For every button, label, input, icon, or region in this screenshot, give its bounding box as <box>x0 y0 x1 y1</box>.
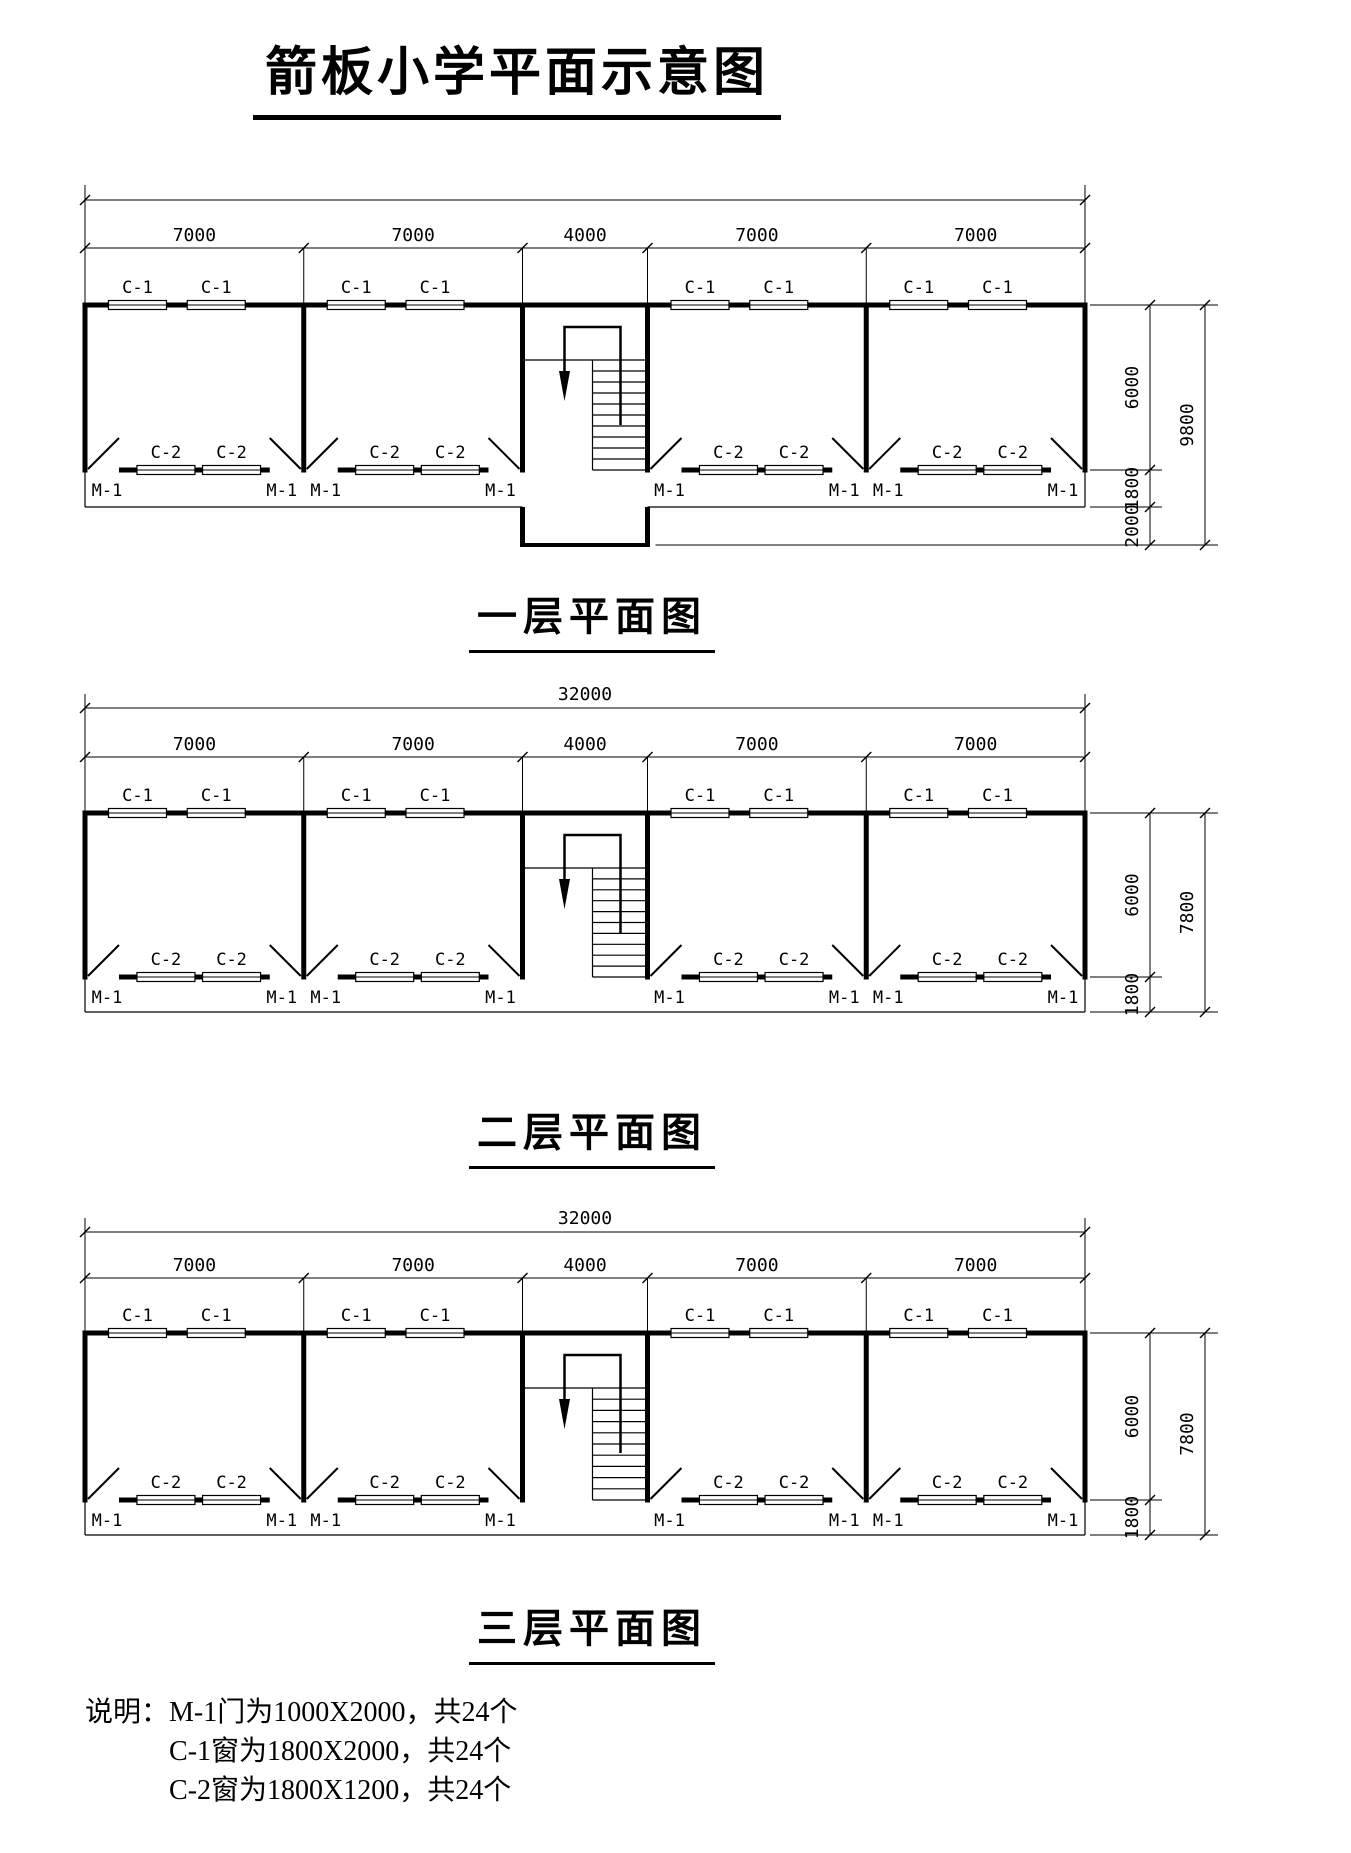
window-c2-label: C-2 <box>369 443 400 463</box>
door-m1-label: M-1 <box>92 481 123 501</box>
right-total-dim-label: 7800 <box>1177 1412 1198 1455</box>
window-c2-label: C-2 <box>713 1473 744 1493</box>
window-c1-label: C-1 <box>685 278 716 298</box>
staircase <box>523 327 648 470</box>
door-swing <box>307 438 338 469</box>
right-total-dim-label: 9800 <box>1177 403 1198 446</box>
right-dim-label: 1800 <box>1122 467 1143 510</box>
door-m1-label: M-1 <box>1048 988 1079 1008</box>
window-c2-label: C-2 <box>435 1473 466 1493</box>
door-swing <box>1051 945 1082 976</box>
right-dim-label: 6000 <box>1122 366 1143 409</box>
door-m1-label: M-1 <box>92 1511 123 1531</box>
right-dim-label: 6000 <box>1122 1395 1143 1438</box>
right-dimensions: 600018007800 <box>1090 808 1218 1017</box>
window-c1-label: C-1 <box>122 278 153 298</box>
window-c2-label: C-2 <box>216 1473 247 1493</box>
window-c2-label: C-2 <box>997 950 1028 970</box>
bay-dim-label: 7000 <box>173 1255 216 1276</box>
notes-lines: M-1门为1000X2000，共24个 C-1窗为1800X2000，共24个 … <box>169 1693 517 1810</box>
door-swing <box>832 438 863 469</box>
window-c1-label: C-1 <box>122 1306 153 1326</box>
right-total-dim-label: 7800 <box>1177 891 1198 934</box>
door-m1-label: M-1 <box>654 988 685 1008</box>
door-m1-label: M-1 <box>485 1511 516 1531</box>
bay-dim-label: 4000 <box>563 734 606 755</box>
windows: C-1C-1C-2C-2C-1C-1C-2C-2C-1C-1C-2C-2C-1C… <box>109 1306 1042 1505</box>
window-c1-label: C-1 <box>763 786 794 806</box>
door-swing <box>651 438 682 469</box>
bay-dim-label: 7000 <box>173 734 216 755</box>
door-swing <box>489 945 520 976</box>
window-c1-label: C-1 <box>903 278 934 298</box>
right-dim-label: 1800 <box>1122 1496 1143 1539</box>
note-door-spec: M-1门为1000X2000，共24个 <box>169 1693 517 1732</box>
window-c1-label: C-1 <box>201 1306 232 1326</box>
stair-down-arrow-icon <box>559 879 570 909</box>
door-swing <box>869 945 900 976</box>
window-c1-label: C-1 <box>903 786 934 806</box>
entrance-porch <box>520 507 650 545</box>
window-c2-label: C-2 <box>216 950 247 970</box>
window-c2-label: C-2 <box>713 443 744 463</box>
door-m1-label: M-1 <box>92 988 123 1008</box>
door-m1-label: M-1 <box>1048 481 1079 501</box>
window-c2-label: C-2 <box>779 950 810 970</box>
bay-dim-label: 7000 <box>735 734 778 755</box>
window-c2-label: C-2 <box>932 950 963 970</box>
door-m1-label: M-1 <box>485 988 516 1008</box>
note-window-c1-spec: C-1窗为1800X2000，共24个 <box>169 1732 517 1771</box>
window-c2-label: C-2 <box>216 443 247 463</box>
door-m1-label: M-1 <box>829 1511 860 1531</box>
window-c2-label: C-2 <box>997 1473 1028 1493</box>
door-m1-label: M-1 <box>873 481 904 501</box>
window-c2-label: C-2 <box>932 443 963 463</box>
window-c2-label: C-2 <box>435 950 466 970</box>
door-m1-label: M-1 <box>310 988 341 1008</box>
door-m1-label: M-1 <box>485 481 516 501</box>
bay-dim-label: 7000 <box>735 225 778 246</box>
right-dimensions: 6000180020009800 <box>656 300 1219 550</box>
door-m1-label: M-1 <box>310 1511 341 1531</box>
door-swing <box>307 945 338 976</box>
bay-dim-label: 7000 <box>954 1255 997 1276</box>
bay-dim-label: 4000 <box>563 1255 606 1276</box>
bay-dim-label: 4000 <box>563 225 606 246</box>
corridor <box>85 470 1085 507</box>
window-c1-label: C-1 <box>201 786 232 806</box>
door-swing <box>88 1468 119 1499</box>
right-dim-label: 1800 <box>1122 973 1143 1016</box>
legend-notes: 说明： M-1门为1000X2000，共24个 C-1窗为1800X2000，共… <box>85 1693 517 1810</box>
window-c1-label: C-1 <box>982 278 1013 298</box>
floor-plan-1: 70007000400070007000C-1C-1C-2C-2C-1C-1C-… <box>80 185 1218 550</box>
window-c2-label: C-2 <box>151 950 182 970</box>
window-c2-label: C-2 <box>369 950 400 970</box>
corridor <box>85 977 1085 1012</box>
staircase <box>523 835 648 977</box>
door-swing <box>1051 438 1082 469</box>
drawing-sheet: 70007000400070007000C-1C-1C-2C-2C-1C-1C-… <box>0 0 1351 1853</box>
bay-dim-label: 7000 <box>391 1255 434 1276</box>
window-c1-label: C-1 <box>763 1306 794 1326</box>
floor3-title: 三层平面图 <box>469 1596 715 1665</box>
door-swing <box>832 945 863 976</box>
stair-down-arrow-icon <box>559 1399 570 1429</box>
overall-dim-label: 32000 <box>558 684 612 705</box>
door-swing <box>88 438 119 469</box>
window-c1-label: C-1 <box>420 786 451 806</box>
floor-plans-drawing: 70007000400070007000C-1C-1C-2C-2C-1C-1C-… <box>0 0 1351 1853</box>
door-m1-label: M-1 <box>1048 1511 1079 1531</box>
door-swing <box>88 945 119 976</box>
door-m1-label: M-1 <box>829 988 860 1008</box>
door-swing <box>832 1468 863 1499</box>
window-c1-label: C-1 <box>763 278 794 298</box>
window-c1-label: C-1 <box>420 278 451 298</box>
window-c2-label: C-2 <box>997 443 1028 463</box>
corridor <box>85 1500 1085 1535</box>
door-m1-label: M-1 <box>310 481 341 501</box>
window-c1-label: C-1 <box>122 786 153 806</box>
bay-dim-label: 7000 <box>173 225 216 246</box>
window-c2-label: C-2 <box>369 1473 400 1493</box>
note-window-c2-spec: C-2窗为1800X1200，共24个 <box>169 1771 517 1810</box>
window-c2-label: C-2 <box>151 1473 182 1493</box>
window-c1-label: C-1 <box>982 786 1013 806</box>
bay-dim-label: 7000 <box>954 734 997 755</box>
door-swing <box>270 438 301 469</box>
staircase <box>523 1355 648 1500</box>
door-m1-label: M-1 <box>873 1511 904 1531</box>
window-c1-label: C-1 <box>341 1306 372 1326</box>
door-swing <box>270 945 301 976</box>
window-c2-label: C-2 <box>151 443 182 463</box>
bay-dim-label: 7000 <box>391 225 434 246</box>
window-c1-label: C-1 <box>420 1306 451 1326</box>
door-m1-label: M-1 <box>829 481 860 501</box>
bay-dim-label: 7000 <box>391 734 434 755</box>
door-m1-label: M-1 <box>266 1511 297 1531</box>
window-c1-label: C-1 <box>201 278 232 298</box>
door-m1-label: M-1 <box>873 988 904 1008</box>
window-c2-label: C-2 <box>435 443 466 463</box>
floor2-title: 二层平面图 <box>469 1100 715 1169</box>
floor1-title: 一层平面图 <box>469 584 715 653</box>
door-swing <box>869 438 900 469</box>
window-c2-label: C-2 <box>779 1473 810 1493</box>
right-dim-label: 6000 <box>1122 873 1143 916</box>
window-c1-label: C-1 <box>341 278 372 298</box>
window-c2-label: C-2 <box>779 443 810 463</box>
right-dim-label: 2000 <box>1122 504 1143 547</box>
window-c1-label: C-1 <box>903 1306 934 1326</box>
door-m1-label: M-1 <box>266 481 297 501</box>
window-c2-label: C-2 <box>713 950 744 970</box>
door-swing <box>869 1468 900 1499</box>
door-swing <box>307 1468 338 1499</box>
notes-prefix: 说明： <box>85 1693 169 1810</box>
door-swing <box>1051 1468 1082 1499</box>
window-c1-label: C-1 <box>685 1306 716 1326</box>
door-swing <box>489 438 520 469</box>
window-c1-label: C-1 <box>982 1306 1013 1326</box>
floor-plan-2: 3200070007000400070007000C-1C-1C-2C-2C-1… <box>80 684 1218 1017</box>
door-swing <box>270 1468 301 1499</box>
right-dimensions: 600018007800 <box>1090 1328 1218 1540</box>
door-m1-label: M-1 <box>266 988 297 1008</box>
window-c2-label: C-2 <box>932 1473 963 1493</box>
door-m1-label: M-1 <box>654 1511 685 1531</box>
door-swing <box>489 1468 520 1499</box>
bay-dim-label: 7000 <box>954 225 997 246</box>
window-c1-label: C-1 <box>685 786 716 806</box>
page-title: 箭板小学平面示意图 <box>253 30 781 120</box>
window-c1-label: C-1 <box>341 786 372 806</box>
door-swing <box>651 945 682 976</box>
door-m1-label: M-1 <box>654 481 685 501</box>
stair-down-arrow-icon <box>559 371 570 401</box>
overall-dim-label: 32000 <box>558 1208 612 1229</box>
bay-dim-label: 7000 <box>735 1255 778 1276</box>
door-swing <box>651 1468 682 1499</box>
floor-plan-3: 3200070007000400070007000C-1C-1C-2C-2C-1… <box>80 1208 1218 1540</box>
